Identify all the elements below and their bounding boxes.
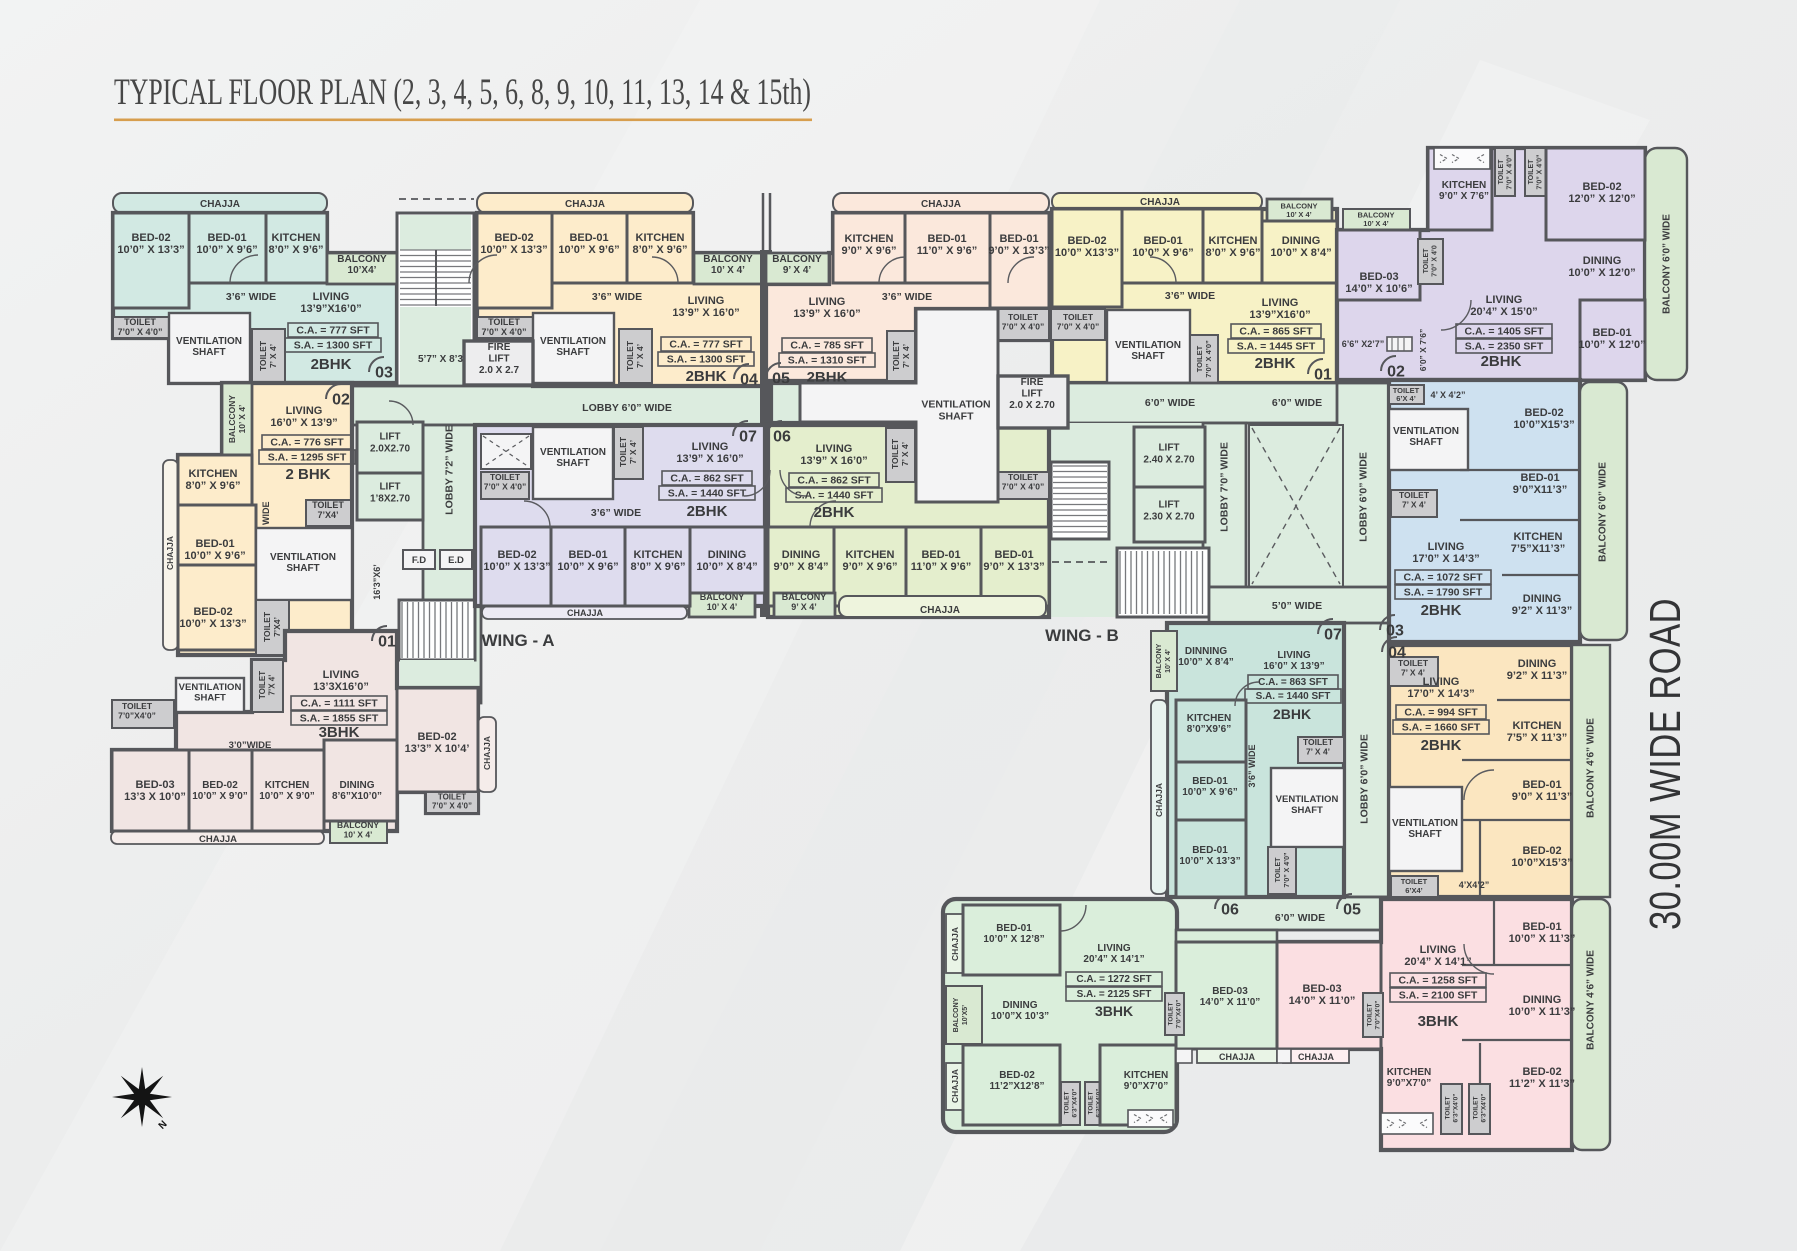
svg-text:04: 04: [1388, 645, 1406, 662]
svg-text:BED-03: BED-03: [1212, 986, 1248, 997]
svg-text:17’0” X 14’3”: 17’0” X 14’3”: [1412, 553, 1479, 565]
svg-text:TOILET: TOILET: [1087, 1091, 1094, 1114]
svg-text:KITCHEN: KITCHEN: [272, 232, 321, 244]
svg-text:6’3”X4’0”: 6’3”X4’0”: [1071, 1089, 1078, 1118]
svg-text:7’ X 4’: 7’ X 4’: [628, 440, 638, 464]
svg-text:F.D: F.D: [412, 555, 426, 566]
svg-text:10’0” X 13’3”: 10’0” X 13’3”: [117, 244, 184, 256]
svg-text:6’6” X2’7”: 6’6” X2’7”: [1342, 339, 1385, 349]
svg-text:KITCHEN: KITCHEN: [636, 232, 685, 244]
svg-text:DINING: DINING: [782, 549, 821, 561]
svg-text:LOBBY 7’0” WIDE: LOBBY 7’0” WIDE: [1219, 442, 1231, 532]
svg-text:4’X4’2”: 4’X4’2”: [1459, 880, 1490, 890]
svg-text:7’0” X 4’0”: 7’0” X 4’0”: [1507, 154, 1514, 189]
svg-text:07: 07: [1324, 627, 1342, 644]
svg-text:SHAFT: SHAFT: [556, 458, 589, 469]
svg-text:BED-01: BED-01: [1192, 845, 1228, 856]
svg-text:DINING: DINING: [1523, 593, 1562, 605]
svg-text:LIVING: LIVING: [1486, 294, 1523, 306]
svg-text:7’0” X 4’0”: 7’0” X 4’0”: [1204, 340, 1213, 378]
svg-text:3BHK: 3BHK: [1095, 1003, 1133, 1019]
svg-text:07: 07: [739, 429, 757, 446]
svg-text:C.A. = 862 SFT: C.A. = 862 SFT: [797, 474, 871, 486]
svg-text:2BHK: 2BHK: [686, 368, 727, 385]
svg-text:5’0” WIDE: 5’0” WIDE: [1272, 600, 1322, 612]
svg-text:10’0” X 9’6”: 10’0” X 9’6”: [1182, 787, 1238, 798]
svg-text:KITCHEN: KITCHEN: [1187, 713, 1231, 724]
svg-text:10’ X 4’: 10’ X 4’: [707, 602, 738, 612]
svg-text:VENTILATION: VENTILATION: [179, 682, 242, 693]
svg-text:BALCONY: BALCONY: [772, 254, 822, 265]
svg-text:3’6” WIDE: 3’6” WIDE: [591, 507, 641, 519]
svg-text:7’X 4’: 7’X 4’: [268, 675, 277, 696]
svg-text:02: 02: [332, 392, 350, 409]
svg-text:9’0” X 7’6”: 9’0” X 7’6”: [1439, 191, 1489, 202]
svg-text:11’2”X12’8”: 11’2”X12’8”: [989, 1081, 1044, 1092]
svg-text:C.A. = 776 SFT: C.A. = 776 SFT: [270, 436, 344, 448]
svg-text:S.A. = 2125 SFT: S.A. = 2125 SFT: [1077, 989, 1152, 1000]
svg-text:TYPICAL FLOOR PLAN (2, 3, 4,: TYPICAL FLOOR PLAN (2, 3, 4, 5, 6, 8, 9,…: [114, 72, 811, 113]
svg-text:BED-01: BED-01: [996, 923, 1032, 934]
svg-text:WING - B: WING - B: [1045, 626, 1119, 645]
svg-text:BED-01: BED-01: [569, 232, 608, 244]
svg-text:17’0” X 14’3”: 17’0” X 14’3”: [1407, 688, 1474, 700]
svg-text:C.A. = 1405 SFT: C.A. = 1405 SFT: [1464, 325, 1544, 337]
svg-text:3BHK: 3BHK: [1418, 1013, 1459, 1030]
svg-text:13’3 X 10’0”: 13’3 X 10’0”: [124, 791, 186, 803]
svg-text:10’0” X 8’4”: 10’0” X 8’4”: [1270, 247, 1331, 259]
svg-text:C.A. = 863 SFT: C.A. = 863 SFT: [1258, 677, 1328, 688]
svg-text:TOILET: TOILET: [890, 438, 900, 469]
svg-text:LIVING: LIVING: [1262, 297, 1299, 309]
svg-text:14’0” X 11’0”: 14’0” X 11’0”: [1289, 995, 1356, 1007]
svg-text:11’2” X 11’3”: 11’2” X 11’3”: [1509, 1078, 1575, 1090]
svg-text:BED-01: BED-01: [207, 232, 246, 244]
svg-text:10’0” X 12’0”: 10’0” X 12’0”: [1568, 267, 1635, 279]
svg-text:BALCONY: BALCONY: [337, 254, 387, 265]
svg-text:BED-01: BED-01: [568, 549, 607, 561]
svg-text:LIVING: LIVING: [688, 295, 725, 307]
svg-text:VENTILATION: VENTILATION: [1392, 818, 1458, 829]
svg-text:SHAFT: SHAFT: [1408, 829, 1441, 840]
svg-text:S.A. = 1855 SFT: S.A. = 1855 SFT: [300, 712, 379, 724]
svg-text:KITCHEN: KITCHEN: [846, 549, 895, 561]
svg-text:VENTILATION: VENTILATION: [921, 399, 990, 411]
svg-text:BALCONY 4’6” WIDE: BALCONY 4’6” WIDE: [1586, 718, 1597, 818]
svg-text:S.A. = 1300 SFT: S.A. = 1300 SFT: [294, 339, 373, 351]
svg-text:KITCHEN: KITCHEN: [845, 233, 894, 245]
svg-text:2.0 X 2.70: 2.0 X 2.70: [1009, 400, 1055, 411]
svg-text:7’5”X11’3”: 7’5”X11’3”: [1511, 543, 1565, 555]
svg-text:7’0” X 4’0”: 7’0” X 4’0”: [1284, 852, 1291, 887]
svg-text:20’4” X 14’1”: 20’4” X 14’1”: [1083, 954, 1144, 965]
svg-text:BED-02: BED-02: [1067, 235, 1106, 247]
svg-text:13’3” X 10’4’: 13’3” X 10’4’: [405, 743, 470, 755]
svg-text:12’0” X 12’0”: 12’0” X 12’0”: [1568, 193, 1635, 205]
svg-text:LIVING: LIVING: [313, 291, 350, 303]
svg-text:SHAFT: SHAFT: [1131, 351, 1164, 362]
svg-text:7’0” X 4’0”: 7’0” X 4’0”: [1002, 482, 1045, 492]
svg-text:KITCHEN: KITCHEN: [1124, 1070, 1168, 1081]
svg-text:16’0” X 13’9”: 16’0” X 13’9”: [270, 417, 337, 429]
svg-text:LOBBY 6’0” WIDE: LOBBY 6’0” WIDE: [582, 402, 672, 414]
svg-text:CHAJJA: CHAJJA: [1298, 1052, 1335, 1062]
svg-text:BALCONY 4’6” WIDE: BALCONY 4’6” WIDE: [1586, 950, 1597, 1050]
svg-text:WING - A: WING - A: [481, 631, 554, 650]
svg-text:DINNING: DINNING: [1185, 646, 1227, 657]
svg-text:2.0 X 2.7: 2.0 X 2.7: [479, 365, 519, 376]
svg-text:SHAFT: SHAFT: [1291, 805, 1323, 816]
svg-text:2BHK: 2BHK: [311, 356, 352, 373]
svg-text:KITCHEN: KITCHEN: [634, 549, 683, 561]
svg-text:10’ X 4’: 10’ X 4’: [344, 830, 373, 840]
svg-text:TOILET: TOILET: [1008, 312, 1039, 322]
svg-text:CHAJJA: CHAJJA: [950, 927, 960, 961]
svg-text:CHAJJA: CHAJJA: [565, 199, 605, 210]
svg-text:03: 03: [375, 365, 393, 382]
svg-text:LIFT: LIFT: [1021, 389, 1042, 400]
svg-text:BALCONY: BALCONY: [953, 997, 960, 1032]
svg-text:6’X4’: 6’X4’: [1405, 886, 1423, 895]
svg-text:TOILET: TOILET: [488, 317, 520, 327]
svg-text:10’0”X15’3”: 10’0”X15’3”: [1511, 857, 1572, 869]
svg-text:BED-02: BED-02: [999, 1070, 1035, 1081]
svg-text:10’ X 4’: 10’ X 4’: [1165, 649, 1172, 673]
svg-text:CHAJJA: CHAJJA: [1219, 1052, 1256, 1062]
svg-text:9’0”X11’3”: 9’0”X11’3”: [1513, 484, 1567, 496]
svg-text:3’6” WIDE: 3’6” WIDE: [882, 291, 932, 303]
svg-text:BALCONY: BALCONY: [1156, 643, 1163, 678]
svg-text:KITCHEN: KITCHEN: [1513, 720, 1562, 732]
svg-text:BED-03: BED-03: [1359, 271, 1398, 283]
svg-text:10’ X 4’: 10’ X 4’: [237, 405, 247, 434]
svg-text:13’9” X 16’0”: 13’9” X 16’0”: [793, 308, 860, 320]
svg-text:9’0” X 9’6”: 9’0” X 9’6”: [841, 245, 896, 257]
svg-text:13’9” X 16’0”: 13’9” X 16’0”: [676, 453, 743, 465]
svg-text:C.A. = 1072 SFT: C.A. = 1072 SFT: [1403, 571, 1483, 583]
svg-text:BED-01: BED-01: [1522, 779, 1561, 791]
svg-text:LIVING: LIVING: [692, 441, 729, 453]
svg-text:SHAFT: SHAFT: [556, 347, 589, 358]
svg-text:LIFT: LIFT: [379, 432, 400, 443]
svg-text:BALCONY 6’0” WIDE: BALCONY 6’0” WIDE: [1662, 214, 1673, 314]
svg-text:DINING: DINING: [1523, 994, 1562, 1006]
svg-text:9’0”X7’0”: 9’0”X7’0”: [1124, 1081, 1168, 1092]
svg-text:TOILET: TOILET: [1167, 1002, 1174, 1025]
svg-text:10’0” X13’3”: 10’0” X13’3”: [1055, 247, 1119, 259]
svg-text:S.A. = 1440 SFT: S.A. = 1440 SFT: [668, 487, 747, 499]
svg-text:LIFT: LIFT: [1158, 443, 1179, 454]
svg-text:10’0” X 9’6”: 10’0” X 9’6”: [1132, 247, 1193, 259]
svg-text:10’0” X 8’4”: 10’0” X 8’4”: [1178, 657, 1234, 668]
svg-text:TOILET: TOILET: [1472, 1096, 1479, 1119]
svg-text:S.A. = 1310 SFT: S.A. = 1310 SFT: [788, 354, 867, 366]
svg-text:2BHK: 2BHK: [687, 503, 728, 520]
svg-text:DINING: DINING: [1518, 658, 1557, 670]
svg-text:10’ X 4’: 10’ X 4’: [1286, 210, 1311, 219]
svg-text:9’0” X 9’6”: 9’0” X 9’6”: [842, 561, 897, 573]
svg-text:11’0” X 9’6”: 11’0” X 9’6”: [911, 561, 972, 573]
svg-text:7’0” X 4’0”: 7’0” X 4’0”: [484, 482, 527, 492]
svg-text:VENTILATION: VENTILATION: [1115, 340, 1181, 351]
svg-text:BED-01: BED-01: [1522, 921, 1561, 933]
svg-text:2.0X2.70: 2.0X2.70: [370, 444, 410, 455]
svg-text:06: 06: [1221, 902, 1239, 919]
svg-text:LIFT: LIFT: [379, 482, 400, 493]
svg-text:9’2” X 11’3”: 9’2” X 11’3”: [1507, 670, 1568, 682]
svg-text:TOILET: TOILET: [1423, 248, 1430, 273]
svg-text:10’0” X 9’6”: 10’0” X 9’6”: [184, 550, 245, 562]
svg-text:VENTILATION: VENTILATION: [270, 552, 336, 563]
svg-text:05: 05: [1343, 902, 1361, 919]
svg-text:8’0” X 9’6”: 8’0” X 9’6”: [268, 244, 323, 256]
svg-text:C.A. = 785 SFT: C.A. = 785 SFT: [790, 339, 864, 351]
svg-text:S.A. = 1295 SFT: S.A. = 1295 SFT: [268, 451, 347, 463]
svg-text:S.A. = 1790 SFT: S.A. = 1790 SFT: [1404, 586, 1483, 598]
svg-text:10’0” X 12’8”: 10’0” X 12’8”: [983, 934, 1044, 945]
svg-text:13’9”X16’0”: 13’9”X16’0”: [300, 303, 361, 315]
svg-text:BED-02: BED-02: [494, 232, 533, 244]
svg-text:6’0” WIDE: 6’0” WIDE: [1272, 397, 1322, 409]
svg-text:9’0” X 11’3”: 9’0” X 11’3”: [1512, 791, 1573, 803]
svg-text:LIVING: LIVING: [816, 443, 853, 455]
svg-text:BED-01: BED-01: [921, 549, 960, 561]
svg-text:8’0” X 9’6”: 8’0” X 9’6”: [1205, 247, 1260, 259]
svg-text:10’0”X15’3”: 10’0”X15’3”: [1513, 419, 1574, 431]
svg-text:14’0” X 10’6”: 14’0” X 10’6”: [1345, 283, 1412, 295]
svg-text:13’9” X 16’0”: 13’9” X 16’0”: [672, 307, 739, 319]
svg-text:11’0” X 9’6”: 11’0” X 9’6”: [917, 245, 978, 257]
svg-text:10’0” X 9’0”: 10’0” X 9’0”: [259, 791, 315, 802]
svg-text:BED-02: BED-02: [417, 731, 456, 743]
svg-text:S.A. = 1440 SFT: S.A. = 1440 SFT: [795, 489, 874, 501]
svg-text:9’ X 4’: 9’ X 4’: [783, 265, 812, 276]
svg-text:TOILET: TOILET: [438, 792, 466, 801]
svg-text:VENTILATION: VENTILATION: [540, 447, 606, 458]
svg-text:10’0”X 10’3”: 10’0”X 10’3”: [991, 1011, 1049, 1022]
svg-text:BED-03: BED-03: [135, 779, 174, 791]
svg-text:3BHK: 3BHK: [319, 724, 360, 741]
svg-text:7’0” X 4’0”: 7’0” X 4’0”: [432, 801, 472, 810]
svg-text:16’0” X 13’9”: 16’0” X 13’9”: [1263, 661, 1324, 672]
svg-text:C.A. = 1272 SFT: C.A. = 1272 SFT: [1076, 974, 1151, 985]
svg-text:8’0” X 9’6”: 8’0” X 9’6”: [185, 480, 240, 492]
svg-text:13’9”X16’0”: 13’9”X16’0”: [1249, 309, 1310, 321]
svg-text:SHAFT: SHAFT: [939, 411, 975, 423]
svg-text:9’ X 4’: 9’ X 4’: [791, 602, 817, 612]
svg-text:10’0” X 13’3”: 10’0” X 13’3”: [179, 618, 246, 630]
svg-text:2BHK: 2BHK: [1421, 602, 1462, 619]
svg-text:14’0” X 11’0”: 14’0” X 11’0”: [1200, 997, 1261, 1008]
svg-text:TOILET: TOILET: [625, 340, 635, 371]
svg-text:BED-02: BED-02: [193, 606, 232, 618]
svg-text:VENTILATION: VENTILATION: [1393, 426, 1459, 437]
svg-text:TOILET: TOILET: [1195, 345, 1204, 372]
svg-text:2BHK: 2BHK: [1255, 355, 1296, 372]
svg-text:6’0” WIDE: 6’0” WIDE: [1145, 397, 1195, 409]
svg-text:BED-01: BED-01: [1143, 235, 1182, 247]
svg-text:8’0”X9’6”: 8’0”X9’6”: [1187, 724, 1231, 735]
svg-text:9’2” X 11’3”: 9’2” X 11’3”: [1512, 605, 1573, 617]
svg-text:8’0” X 9’6”: 8’0” X 9’6”: [630, 561, 685, 573]
svg-text:06: 06: [773, 429, 791, 446]
svg-text:TOILET: TOILET: [312, 500, 344, 510]
svg-text:16’3”X6’: 16’3”X6’: [372, 564, 382, 600]
svg-text:CHAJJA: CHAJJA: [199, 834, 237, 845]
svg-text:BALCCONY: BALCCONY: [227, 395, 237, 443]
svg-text:TOILET: TOILET: [122, 701, 153, 711]
svg-text:VENTILATION: VENTILATION: [540, 336, 606, 347]
svg-text:6’X 4’: 6’X 4’: [1396, 394, 1416, 403]
svg-text:E.D: E.D: [448, 555, 464, 566]
svg-text:9’0” X 13’3”: 9’0” X 13’3”: [983, 561, 1044, 573]
svg-text:S.A. = 2350 SFT: S.A. = 2350 SFT: [1465, 340, 1544, 352]
svg-text:8’6”X10’0”: 8’6”X10’0”: [332, 791, 382, 802]
svg-text:S.A. = 1660 SFT: S.A. = 1660 SFT: [1402, 721, 1481, 733]
svg-text:7’0”X4’0”: 7’0”X4’0”: [1374, 1001, 1381, 1030]
svg-text:S.A. = 1445 SFT: S.A. = 1445 SFT: [1237, 340, 1316, 352]
svg-text:C.A. = 777 SFT: C.A. = 777 SFT: [296, 324, 370, 336]
svg-text:7’ X 4’: 7’ X 4’: [1306, 747, 1330, 757]
svg-text:CHAJJA: CHAJJA: [567, 608, 604, 618]
svg-text:13’3X16’0”: 13’3X16’0”: [313, 681, 369, 693]
svg-text:SHAFT: SHAFT: [1409, 437, 1442, 448]
svg-text:30.00M WIDE ROAD: 30.00M WIDE ROAD: [1641, 598, 1690, 930]
svg-text:DINING: DINING: [1282, 235, 1321, 247]
svg-text:04: 04: [740, 372, 758, 389]
svg-text:CHAJJA: CHAJJA: [482, 736, 492, 770]
svg-text:SHAFT: SHAFT: [192, 347, 225, 358]
svg-text:01: 01: [1314, 367, 1332, 384]
svg-text:2BHK: 2BHK: [1273, 706, 1311, 722]
svg-text:TOILET: TOILET: [1401, 877, 1428, 886]
svg-text:10’0” X 9’6”: 10’0” X 9’6”: [196, 244, 257, 256]
svg-text:7’0”X4’0”: 7’0”X4’0”: [118, 711, 156, 721]
svg-text:BED-02: BED-02: [1582, 181, 1621, 193]
svg-text:10’X4’: 10’X4’: [348, 265, 377, 276]
svg-text:10’0” X 13’3”: 10’0” X 13’3”: [480, 244, 547, 256]
svg-text:TOILET: TOILET: [258, 340, 268, 371]
svg-text:10’0” X 11’3”: 10’0” X 11’3”: [1509, 933, 1576, 945]
svg-text:6’3”X4’0”: 6’3”X4’0”: [1452, 1094, 1459, 1123]
svg-text:BED-03: BED-03: [1302, 983, 1341, 995]
svg-text:KITCHEN: KITCHEN: [1442, 180, 1486, 191]
svg-text:7’ X 4’: 7’ X 4’: [268, 344, 278, 368]
svg-text:TOILET: TOILET: [618, 436, 628, 467]
svg-text:7’ X 4’: 7’ X 4’: [1402, 500, 1426, 510]
svg-text:20’4” X 14’1”: 20’4” X 14’1”: [1404, 956, 1471, 968]
svg-text:TOILET: TOILET: [1063, 312, 1094, 322]
svg-text:TOILET: TOILET: [1063, 1091, 1070, 1114]
svg-text:TOILET: TOILET: [124, 317, 156, 327]
svg-text:FIRE: FIRE: [488, 342, 511, 353]
svg-text:10’0” X 13’3”: 10’0” X 13’3”: [483, 561, 550, 573]
svg-text:CHAJJA: CHAJJA: [165, 536, 175, 570]
svg-text:LIVING: LIVING: [1428, 541, 1465, 553]
svg-text:C.A. = 865 SFT: C.A. = 865 SFT: [1239, 325, 1313, 337]
svg-text:CHAJJA: CHAJJA: [200, 199, 240, 210]
svg-text:C.A. = 777 SFT: C.A. = 777 SFT: [669, 338, 743, 350]
svg-text:LIVING: LIVING: [1277, 650, 1311, 661]
svg-text:TOILET: TOILET: [1275, 857, 1282, 882]
svg-text:7’ X 4’: 7’ X 4’: [901, 344, 911, 368]
svg-text:C.A. = 994 SFT: C.A. = 994 SFT: [1404, 706, 1478, 718]
svg-text:S.A. = 1440 SFT: S.A. = 1440 SFT: [1256, 691, 1331, 702]
svg-text:TOILET: TOILET: [891, 340, 901, 371]
svg-text:5’7” X 8’3”: 5’7” X 8’3”: [418, 354, 468, 365]
svg-text:TOILET: TOILET: [262, 611, 272, 642]
svg-text:7’ X 4’: 7’ X 4’: [635, 344, 645, 368]
svg-text:BED-01: BED-01: [994, 549, 1033, 561]
svg-text:LIVING: LIVING: [809, 296, 846, 308]
svg-text:LIVING: LIVING: [323, 669, 360, 681]
svg-text:BED-01: BED-01: [195, 538, 234, 550]
svg-text:DINING: DINING: [1003, 1000, 1038, 1011]
svg-text:BED-01: BED-01: [1192, 776, 1228, 787]
svg-text:KITCHEN: KITCHEN: [1209, 235, 1258, 247]
svg-text:8’0” X 9’6”: 8’0” X 9’6”: [632, 244, 687, 256]
svg-text:10’0” X 8’4”: 10’0” X 8’4”: [696, 561, 757, 573]
svg-text:BED-02: BED-02: [1522, 1066, 1561, 1078]
svg-text:LIVING: LIVING: [1097, 943, 1131, 954]
svg-text:LIFT: LIFT: [488, 354, 509, 365]
svg-text:BED-02: BED-02: [1522, 845, 1561, 857]
svg-text:7’ X 4’: 7’ X 4’: [1401, 668, 1425, 678]
svg-text:6’0” X 7’6”: 6’0” X 7’6”: [1418, 329, 1428, 372]
svg-text:CHAJJA: CHAJJA: [1140, 197, 1180, 208]
svg-text:LOBBY 7’2” WIDE: LOBBY 7’2” WIDE: [444, 425, 456, 515]
svg-text:10’0” X 9’6”: 10’0” X 9’6”: [558, 244, 619, 256]
svg-text:SHAFT: SHAFT: [286, 563, 319, 574]
svg-text:KITCHEN: KITCHEN: [1514, 531, 1563, 543]
svg-text:9’0” X 13’3”: 9’0” X 13’3”: [988, 245, 1049, 257]
svg-text:7’ X 4’: 7’ X 4’: [900, 442, 910, 466]
svg-text:10’X5’: 10’X5’: [962, 1005, 969, 1025]
svg-text:7’0” X 4’0”: 7’0” X 4’0”: [1002, 322, 1045, 332]
svg-text:TOILET: TOILET: [1498, 159, 1505, 184]
svg-text:CHAJJA: CHAJJA: [950, 1069, 960, 1103]
svg-text:13’9” X 16’0”: 13’9” X 16’0”: [800, 455, 867, 467]
svg-text:C.A. = 1111 SFT: C.A. = 1111 SFT: [300, 697, 378, 709]
svg-text:DINING: DINING: [708, 549, 747, 561]
svg-text:C.A. = 862 SFT: C.A. = 862 SFT: [670, 472, 744, 484]
svg-text:DINING: DINING: [1583, 255, 1622, 267]
svg-text:9’0” X 8’4”: 9’0” X 8’4”: [773, 561, 828, 573]
svg-text:CHAJJA: CHAJJA: [1154, 783, 1164, 817]
svg-text:CHAJJA: CHAJJA: [921, 199, 961, 210]
svg-text:1’8X2.70: 1’8X2.70: [370, 494, 410, 505]
svg-text:7’0” X 4’0”: 7’0” X 4’0”: [1057, 322, 1100, 332]
svg-text:VENTILATION: VENTILATION: [176, 336, 242, 347]
svg-text:20’4” X 15’0”: 20’4” X 15’0”: [1470, 306, 1537, 318]
svg-text:9’0”X7’0”: 9’0”X7’0”: [1387, 1078, 1431, 1089]
svg-text:3’6” WIDE: 3’6” WIDE: [592, 291, 642, 303]
svg-text:7’0” X 4’0: 7’0” X 4’0: [1432, 245, 1439, 277]
svg-text:BALCONY: BALCONY: [703, 254, 753, 265]
svg-text:7’5” X 11’3”: 7’5” X 11’3”: [1507, 732, 1568, 744]
svg-text:DINING: DINING: [340, 780, 375, 791]
svg-text:C.A. = 1258 SFT: C.A. = 1258 SFT: [1398, 974, 1478, 986]
svg-text:BALCONY 6’0” WIDE: BALCONY 6’0” WIDE: [1598, 462, 1609, 562]
svg-text:10’ X 4’: 10’ X 4’: [1363, 219, 1388, 228]
svg-text:4’ X 4’2”: 4’ X 4’2”: [1430, 390, 1465, 400]
svg-text:2.30 X 2.70: 2.30 X 2.70: [1143, 512, 1195, 523]
svg-text:LOBBY 6’0” WIDE: LOBBY 6’0” WIDE: [1358, 452, 1370, 542]
svg-text:3’6” WIDE: 3’6” WIDE: [1165, 290, 1215, 302]
svg-text:S.A. = 1300 SFT: S.A. = 1300 SFT: [667, 353, 746, 365]
svg-text:6’0” WIDE: 6’0” WIDE: [1275, 912, 1325, 924]
svg-text:BED-02: BED-02: [497, 549, 536, 561]
